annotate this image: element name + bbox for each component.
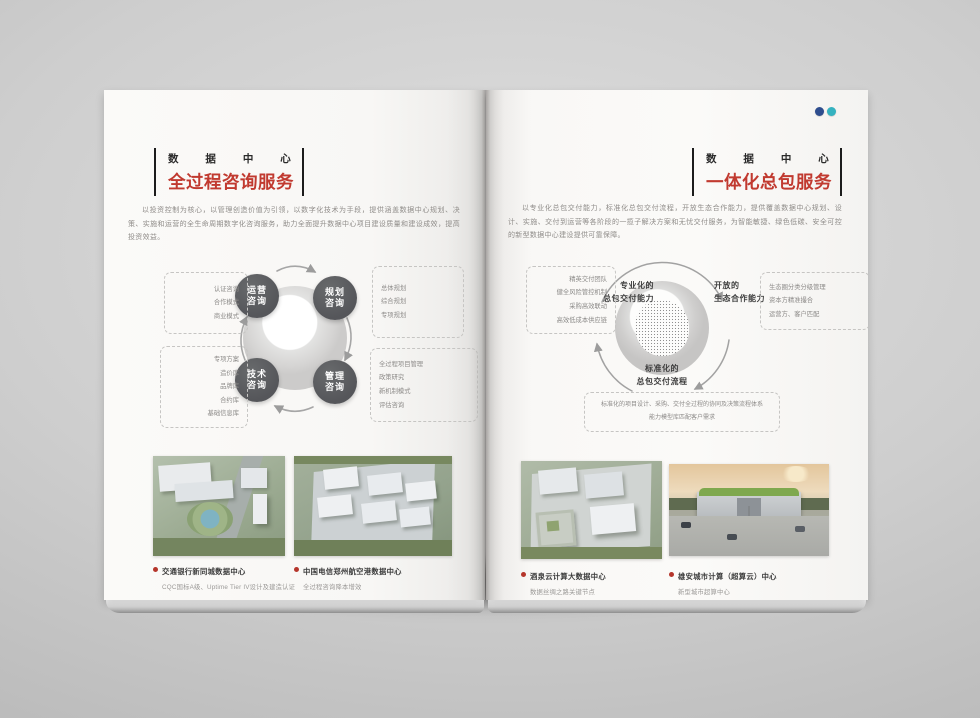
right-section-title: 数 据 中 心 一体化总包服务 xyxy=(692,148,842,196)
brochure-spread: 数 据 中 心 全过程咨询服务 以投资控制为核心，以管理创造价值为引领，以数字化… xyxy=(104,90,868,616)
building-block xyxy=(590,503,636,535)
bullet-dot-icon xyxy=(294,567,299,572)
photo-jiuquan-datacenter xyxy=(521,461,662,559)
project-desc: 全过程咨询降本增效 xyxy=(303,582,402,591)
box-standardized-system: 标准化的项目设计、采购、交付全过程的协同及决策流程体系 能力模型库匹配客户需求 xyxy=(584,392,780,432)
bullet-dot-icon xyxy=(669,572,674,577)
label-standardized-process: 标准化的 总包交付流程 xyxy=(582,363,742,389)
page-edge-right xyxy=(488,599,866,613)
project-desc: 数据丝绸之路关键节点 xyxy=(530,587,606,596)
project-name: 雄安城市计算（超算云）中心 xyxy=(678,572,777,581)
project-name: 中国电信郑州航空港数据中心 xyxy=(303,567,402,576)
building-block xyxy=(323,466,359,489)
photo-bank-datacenter xyxy=(153,456,285,556)
building-block xyxy=(367,472,403,495)
box-certification-consulting: 认证咨询 合作模式 商业模式 xyxy=(164,272,248,334)
photo-telecom-datacenter xyxy=(294,456,452,556)
box-whole-process-management: 全过程项目管理 政策研究 新机制模式 评估咨询 xyxy=(370,348,478,422)
project-caption: 中国电信郑州航空港数据中心 全过程咨询降本增效 xyxy=(294,561,402,591)
right-page-title: 一体化总包服务 xyxy=(706,169,830,194)
building-tower xyxy=(253,494,267,524)
green-roof xyxy=(699,488,799,496)
tree-belt xyxy=(521,547,662,559)
project-desc: CQC国标A级、Uptime Tier IV设计及建造认证 xyxy=(162,582,295,591)
sun-glow xyxy=(779,466,813,482)
project-caption: 交通银行新同城数据中心 CQC国标A级、Uptime Tier IV设计及建造认… xyxy=(153,561,295,591)
park-pond xyxy=(187,502,233,536)
page-edge-left xyxy=(106,599,484,613)
publisher-logo-badge-teal xyxy=(827,107,836,116)
plaza xyxy=(669,516,829,556)
building-block xyxy=(317,494,353,517)
project-caption: 酒泉云计算大数据中心 数据丝绸之路关键节点 xyxy=(521,566,606,596)
tree-belt xyxy=(294,456,452,464)
page-right: 数 据 中 心 一体化总包服务 以专业化总包交付能力，标准化总包交付流程，开放生… xyxy=(486,90,868,600)
publisher-logo-badge-blue xyxy=(815,107,824,116)
tree-belt xyxy=(153,538,285,556)
building-block xyxy=(538,467,578,494)
right-eyebrow: 数 据 中 心 xyxy=(706,151,830,166)
box-ecosystem-management: 生态圈分类分级管理 资本方精准撮合 运营方、客户匹配 xyxy=(760,272,868,330)
courtyard-green xyxy=(547,520,560,531)
left-section-title: 数 据 中 心 全过程咨询服务 xyxy=(154,148,304,196)
node-planning-consulting: 规划 咨询 xyxy=(313,276,357,320)
consulting-diagram: 运营 咨询 规划 咨询 技术 咨询 管理 咨询 认证咨询 合作模式 商业模式 总… xyxy=(104,250,485,445)
right-intro-paragraph: 以专业化总包交付能力，标准化总包交付流程，开放生态合作能力，提供覆盖数据中心规划… xyxy=(508,202,842,243)
bullet-dot-icon xyxy=(153,567,158,572)
box-elite-delivery-team: 精英交付团队 健全风险管控机制 采购高效联动 高效低成本供应链 xyxy=(526,266,616,334)
node-management-consulting: 管理 咨询 xyxy=(313,360,357,404)
epc-capability-diagram: 专业化的 总包交付能力 开放的 生态合作能力 标准化的 总包交付流程 精英交付团… xyxy=(486,250,868,450)
building-block xyxy=(584,471,624,498)
building-block xyxy=(361,500,397,523)
building-block xyxy=(405,480,437,501)
photo-xiongan-datacenter xyxy=(669,464,829,556)
box-special-solutions: 专项方案 造价库 品牌库 合约库 基础信息库 xyxy=(160,346,248,428)
building-block xyxy=(399,506,431,527)
left-eyebrow: 数 据 中 心 xyxy=(168,151,292,166)
building-block xyxy=(174,480,233,502)
building-block xyxy=(241,468,267,488)
page-left: 数 据 中 心 全过程咨询服务 以投资控制为核心，以管理创造价值为引领，以数字化… xyxy=(104,90,485,600)
left-page-title: 全过程咨询服务 xyxy=(168,169,292,194)
tree-belt xyxy=(294,540,452,556)
project-name: 酒泉云计算大数据中心 xyxy=(530,572,606,581)
box-overall-planning: 总体规划 综合规划 专项规划 xyxy=(372,266,464,338)
car xyxy=(795,526,805,532)
left-intro-paragraph: 以投资控制为核心，以管理创造价值为引领，以数字化技术为手段，提供涵盖数据中心规划… xyxy=(128,204,460,245)
project-name: 交通银行新同城数据中心 xyxy=(162,567,246,576)
bullet-dot-icon xyxy=(521,572,526,577)
car xyxy=(681,522,691,528)
project-desc: 新型城市超算中心 xyxy=(678,587,777,596)
project-caption: 雄安城市计算（超算云）中心 新型城市超算中心 xyxy=(669,566,777,596)
car xyxy=(727,534,737,540)
